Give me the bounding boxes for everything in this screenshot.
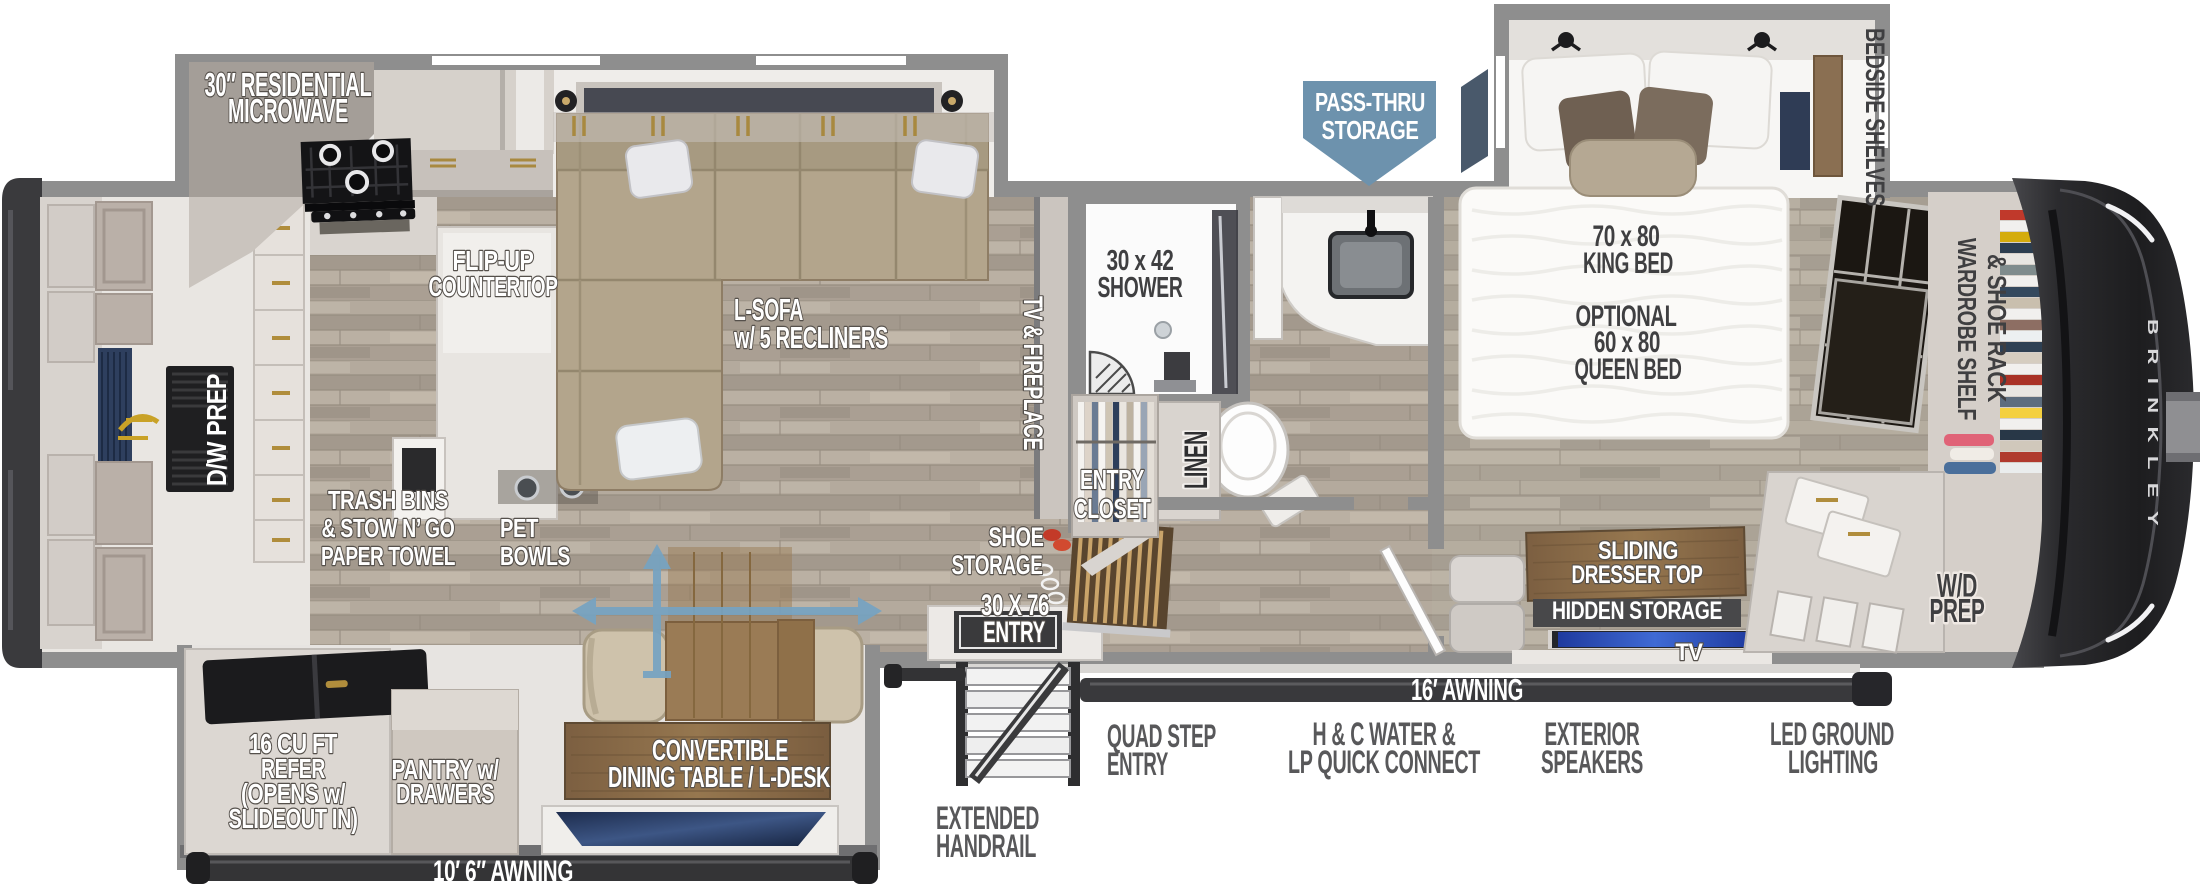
svg-text:STORAGE: STORAGE [1322, 115, 1419, 145]
svg-text:HANDRAIL: HANDRAIL [936, 828, 1036, 864]
svg-text:SLIDEOUT IN): SLIDEOUT IN) [229, 803, 358, 834]
svg-text:DINING TABLE / L-DESK: DINING TABLE / L-DESK [608, 762, 830, 794]
svg-text:ENTRY: ENTRY [1080, 464, 1145, 495]
svg-text:LP QUICK CONNECT: LP QUICK CONNECT [1288, 744, 1481, 780]
svg-text:PASS-THRU: PASS-THRU [1315, 87, 1425, 117]
svg-text:LINEN: LINEN [1178, 431, 1214, 489]
svg-text:DRAWERS: DRAWERS [396, 778, 494, 809]
svg-text:w/ 5 RECLINERS: w/ 5 RECLINERS [733, 320, 888, 355]
svg-text:SHOWER: SHOWER [1098, 272, 1183, 304]
svg-text:KING BED: KING BED [1583, 247, 1673, 280]
svg-text:COUNTERTOP: COUNTERTOP [429, 271, 558, 302]
svg-text:CLOSET: CLOSET [1074, 493, 1151, 524]
svg-text:SPEAKERS: SPEAKERS [1541, 744, 1643, 780]
svg-text:BOWLS: BOWLS [500, 541, 570, 571]
svg-text:BEDSIDE SHELVES: BEDSIDE SHELVES [1860, 28, 1890, 206]
svg-text:HIDDEN STORAGE: HIDDEN STORAGE [1552, 597, 1722, 625]
svg-text:16′ AWNING: 16′ AWNING [1411, 672, 1523, 707]
svg-text:D/W PREP: D/W PREP [201, 374, 232, 486]
svg-text:10′ 6″ AWNING: 10′ 6″ AWNING [433, 855, 573, 884]
svg-text:& STOW N’ GO: & STOW N’ GO [322, 513, 455, 543]
svg-text:STORAGE: STORAGE [952, 550, 1043, 580]
svg-text:SHOE: SHOE [989, 522, 1044, 552]
svg-text:TV: TV [1676, 639, 1703, 666]
svg-text:WARDROBE SHELF: WARDROBE SHELF [1952, 238, 1982, 420]
svg-text:TRASH BINS: TRASH BINS [328, 485, 448, 515]
svg-text:MICROWAVE: MICROWAVE [228, 92, 348, 129]
svg-text:& SHOE RACK: & SHOE RACK [1982, 254, 2012, 403]
svg-text:PET: PET [500, 513, 538, 543]
svg-text:ENTRY: ENTRY [983, 616, 1045, 649]
svg-text:PAPER TOWEL: PAPER TOWEL [321, 541, 455, 571]
svg-text:ENTRY: ENTRY [1107, 746, 1168, 782]
svg-text:TV & FIREPLACE: TV & FIREPLACE [1018, 296, 1048, 450]
svg-text:DRESSER TOP: DRESSER TOP [1572, 561, 1703, 589]
svg-text:QUEEN BED: QUEEN BED [1575, 353, 1682, 386]
svg-text:PREP: PREP [1930, 592, 1985, 629]
svg-text:BRINKLEY: BRINKLEY [2144, 319, 2161, 539]
svg-text:LIGHTING: LIGHTING [1788, 744, 1878, 780]
